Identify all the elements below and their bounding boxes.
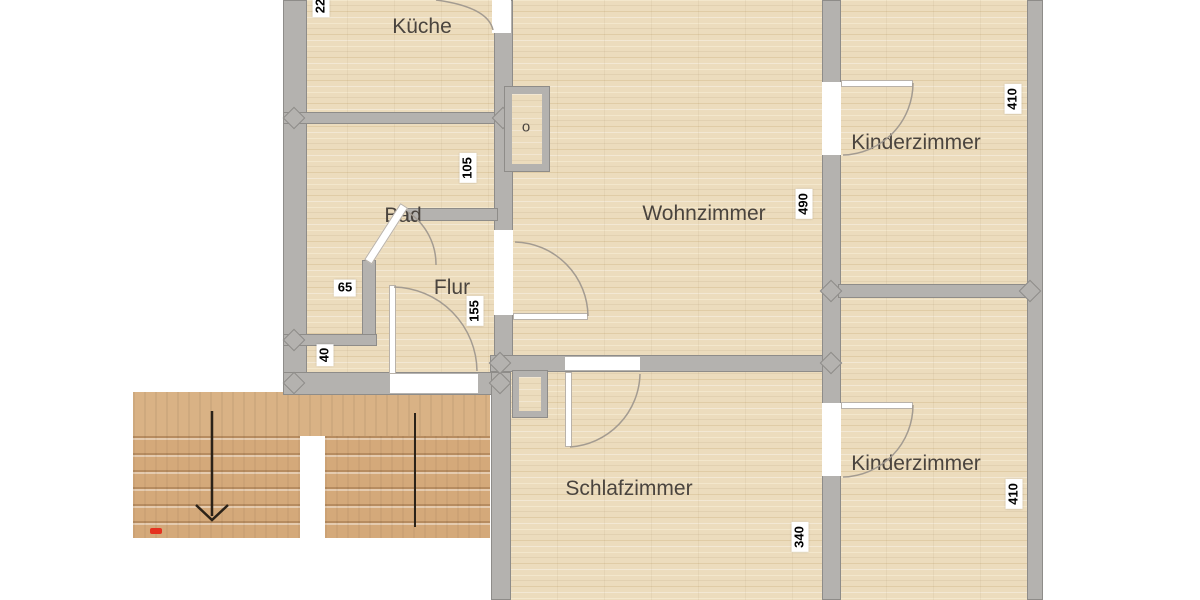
stair-landing (133, 392, 490, 436)
dim-label-340: 340 (792, 522, 809, 552)
door-leaf-kinderzimmer-top (841, 80, 913, 87)
dim-label-40: 40 (317, 344, 334, 366)
dim-label-22: 22 (313, 0, 330, 17)
floor-right-block (510, 0, 1037, 600)
room-label-flur: Flur (434, 276, 470, 300)
wall-kueche-bad (283, 112, 513, 124)
door-leaf-schlafzimmer (565, 372, 572, 447)
wall-schlafzimmer-left (491, 372, 511, 600)
dim-label-65: 65 (334, 280, 356, 297)
stair-flight-left (133, 436, 300, 538)
room-label-kinderzimmer-bottom: Kinderzimmer (851, 452, 981, 476)
room-label-shaft: o (522, 119, 530, 136)
room-label-kueche: Küche (392, 15, 452, 39)
dim-label-410-bottom: 410 (1006, 479, 1023, 509)
door-opening-entrance (390, 374, 478, 393)
door-opening-kueche (492, 0, 511, 33)
small-shaft-inner (519, 377, 541, 411)
dim-label-410-top: 410 (1005, 84, 1022, 114)
wall-kinderzimmer-divider (838, 284, 1030, 298)
wall-outer-left (283, 0, 307, 378)
door-leaf-kinderzimmer-bottom (841, 402, 913, 409)
wall-main-vertical (494, 0, 513, 372)
room-label-schlafzimmer: Schlafzimmer (565, 477, 692, 501)
door-leaf-wohnzimmer (513, 313, 588, 320)
floor-plan: Küche Bad Flur Wohnzimmer Kinderzimmer K… (0, 0, 1200, 600)
stair-red-marker (150, 528, 162, 534)
dim-label-490: 490 (796, 189, 813, 219)
dim-label-105: 105 (460, 153, 477, 183)
room-label-kinderzimmer-top: Kinderzimmer (851, 131, 981, 155)
door-opening-wohnzimmer (494, 230, 513, 315)
room-label-wohnzimmer: Wohnzimmer (642, 202, 765, 226)
door-leaf-entrance (389, 285, 396, 374)
stair-flight-right (325, 436, 490, 538)
door-opening-schlafzimmer (565, 357, 640, 370)
dim-label-155: 155 (467, 296, 484, 326)
door-opening-kinderzimmer-top (822, 82, 841, 155)
door-opening-kinderzimmer-bottom (822, 403, 841, 476)
wall-bad-nook-right (362, 260, 376, 342)
